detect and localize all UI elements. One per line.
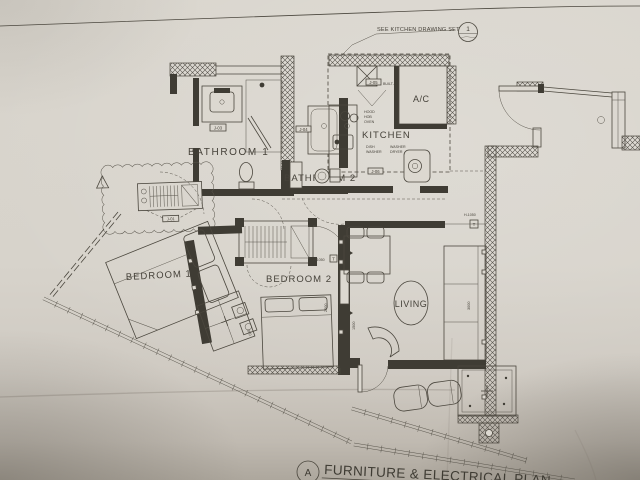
- washer-dryer-unit: [404, 150, 430, 182]
- svg-text:J-03: J-03: [214, 125, 223, 130]
- paper-creases: [0, 338, 596, 480]
- sheet-ref-letter: A: [305, 468, 312, 479]
- tag-j05: J-05: [366, 79, 381, 85]
- lounge-chairs: [393, 379, 463, 412]
- svg-text:H-1050: H-1050: [464, 213, 476, 217]
- kitchen-note-text: SEE KITCHEN DRAWING SET: [377, 27, 460, 33]
- kitchen-note: SEE KITCHEN DRAWING SET 1: [341, 23, 478, 57]
- svg-text:T: T: [332, 256, 335, 261]
- dishwasher-label-1: DISH: [366, 145, 375, 149]
- left-terrace-edge: [48, 212, 121, 299]
- closet-unit: [137, 181, 202, 210]
- dim-bedroom1: 950: [246, 329, 252, 336]
- nightstand-1: [232, 302, 249, 318]
- bedroom1-label: BEDROOM 1: [126, 269, 193, 283]
- dining-table: [344, 236, 390, 274]
- dim-sofa: 3000: [467, 302, 471, 310]
- svg-text:J-01: J-01: [167, 216, 176, 221]
- terrace: [393, 366, 518, 443]
- sheet-border-line: [0, 6, 640, 26]
- svg-text:J-05: J-05: [369, 80, 378, 85]
- svg-text:T: T: [473, 222, 476, 227]
- svg-text:J-06: J-06: [371, 169, 380, 174]
- bed-2: [261, 295, 333, 369]
- detail-ref-number: 1: [466, 26, 470, 33]
- bedroom2-label: BEDROOM 2: [266, 274, 332, 285]
- mid-walls: [184, 221, 486, 344]
- living-room: LIVING 3000 1500: [340, 227, 486, 392]
- photographed-blueprint: SEE KITCHEN DRAWING SET 1: [0, 0, 640, 480]
- svg-text:J-04: J-04: [299, 127, 308, 132]
- dim-bedroom2: 2000: [324, 304, 328, 312]
- kitchen-label: KITCHEN: [362, 130, 411, 141]
- svg-text:H 1050: H 1050: [313, 258, 325, 262]
- bedroom1-terrace-wall: [184, 240, 212, 344]
- bedroom-2: BEDROOM 2 2000: [248, 225, 353, 375]
- tag-j01: J-01: [163, 215, 179, 222]
- floor-plan-drawing: SEE KITCHEN DRAWING SET 1: [0, 0, 640, 480]
- height-mark-wardrobe: H 1050 T: [313, 255, 337, 262]
- entry-door-right: [499, 82, 640, 150]
- height-mark-right: H-1050 T: [464, 213, 478, 228]
- dishwasher-label-2: WASHER: [366, 150, 382, 154]
- oven-label: OVEN: [364, 120, 375, 124]
- lounge-chair: [368, 327, 399, 357]
- sofa: [444, 246, 486, 360]
- hob-label: HOB: [364, 115, 372, 119]
- washerdryer-label-2: DRYER: [390, 150, 403, 154]
- right-wall: H-1050 T: [464, 146, 538, 416]
- bedroom-1: BEDROOM 1 950: [106, 221, 257, 351]
- tag-j06: J-06: [368, 168, 383, 174]
- tag-j04: J-04: [296, 126, 311, 132]
- title-block: A FURNITURE & ELECTRICAL PLAN: [297, 461, 551, 480]
- ac-label: A/C: [413, 94, 430, 104]
- dim-living: 1500: [352, 322, 356, 330]
- tag-j03: J-03: [210, 124, 226, 131]
- hood-label: HOOD: [364, 110, 375, 114]
- sheet-title: FURNITURE & ELECTRICAL PLAN: [324, 462, 552, 480]
- bathroom1-label: BATHROOM 1: [188, 147, 269, 158]
- washerdryer-label-1: WASHER: [390, 145, 406, 149]
- ac-room: A/C: [394, 66, 447, 129]
- living-label: LIVING: [395, 299, 428, 309]
